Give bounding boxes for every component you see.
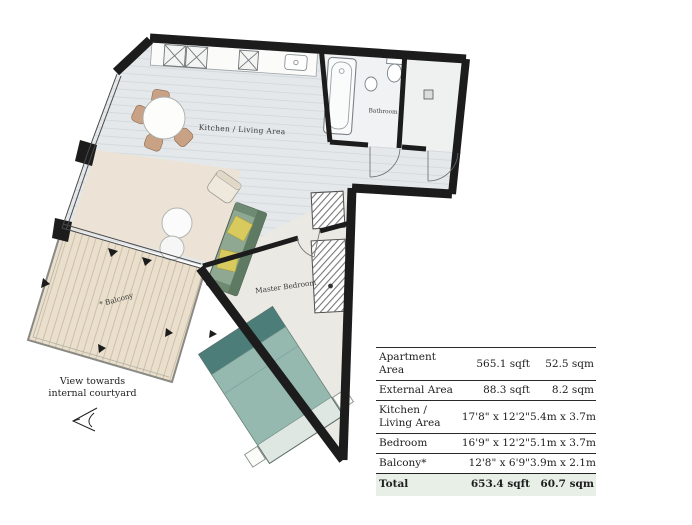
row-metric: 5.4m x 3.7m xyxy=(530,411,594,424)
total-imperial: 653.4 sqft xyxy=(456,478,530,491)
area-table-row: Balcony* 12'8" x 6'9" 3.9m x 2.1m xyxy=(376,453,596,473)
row-label: Balcony* xyxy=(379,457,456,470)
row-metric: 52.5 sqm xyxy=(530,358,594,371)
row-metric: 3.9m x 2.1m xyxy=(530,457,594,470)
basin-icon xyxy=(365,77,377,91)
row-label: Apartment Area xyxy=(379,351,456,377)
row-label: External Area xyxy=(379,384,456,397)
view-note-line1: View towards xyxy=(30,376,155,388)
row-metric: 5.1m x 3.7m xyxy=(530,437,594,450)
area-table-total-row: Total 653.4 sqft 60.7 sqm xyxy=(376,473,596,496)
row-imperial: 16'9" x 12'2" xyxy=(456,437,530,450)
total-label: Total xyxy=(379,478,456,491)
coffee-table xyxy=(162,208,192,238)
dining-table xyxy=(143,97,185,139)
area-table-row: Kitchen / Living Area 17'8" x 12'2" 5.4m… xyxy=(376,400,596,433)
area-table: Apartment Area 565.1 sqft 52.5 sqm Exter… xyxy=(376,347,596,496)
area-table-row: Apartment Area 565.1 sqft 52.5 sqm xyxy=(376,347,596,380)
row-imperial: 565.1 sqft xyxy=(456,358,530,371)
row-imperial: 17'8" x 12'2" xyxy=(456,411,530,424)
row-label: Bedroom xyxy=(379,437,456,450)
wardrobe xyxy=(311,239,349,313)
row-imperial: 88.3 sqft xyxy=(456,384,530,397)
utility-icon xyxy=(424,90,433,99)
oven-icon xyxy=(238,50,258,70)
area-table-row: External Area 88.3 sqft 8.2 sqm xyxy=(376,380,596,400)
view-note-line2: internal courtyard xyxy=(30,388,155,400)
storage-floor xyxy=(398,54,462,152)
view-note: View towards internal courtyard xyxy=(30,376,155,400)
row-label: Kitchen / Living Area xyxy=(379,404,456,430)
total-metric: 60.7 sqm xyxy=(530,478,594,491)
floor-plan-page: Kitchen / Living Area Bathroom Master Be… xyxy=(0,0,692,525)
view-direction-icon xyxy=(73,408,97,431)
sink-icon xyxy=(284,54,307,70)
area-table-row: Bedroom 16'9" x 12'2" 5.1m x 3.7m xyxy=(376,433,596,453)
side-table xyxy=(160,236,184,260)
row-imperial: 12'8" x 6'9" xyxy=(456,457,530,470)
row-metric: 8.2 sqm xyxy=(530,384,594,397)
